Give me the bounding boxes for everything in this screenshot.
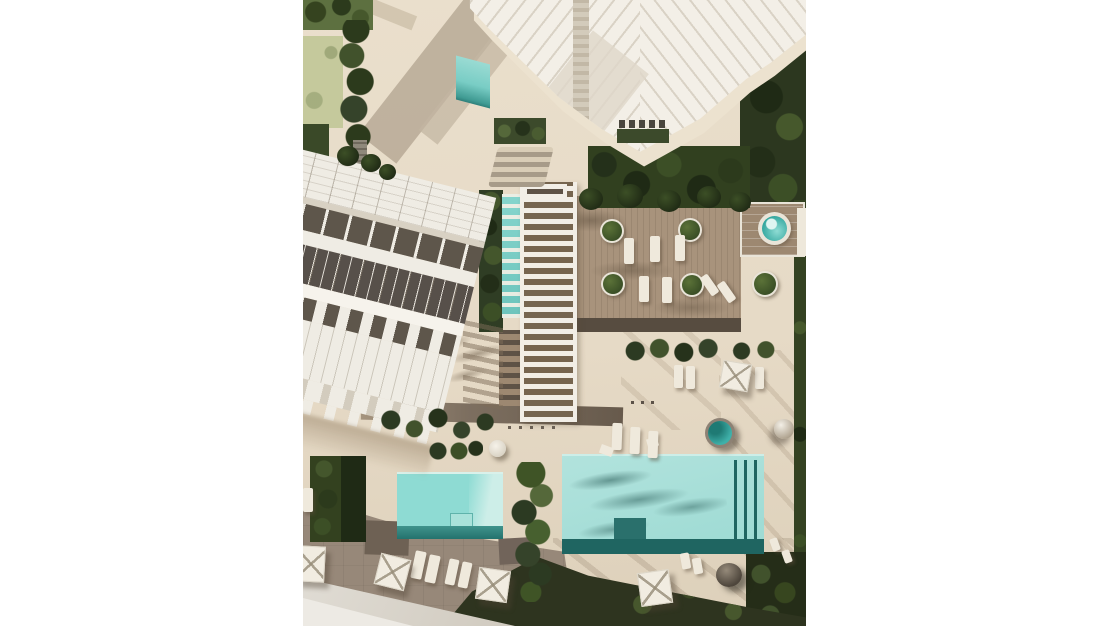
jacuzzi-plunge-pool (758, 212, 791, 245)
pool-edge (562, 454, 764, 456)
sun-lounger (612, 423, 623, 450)
tower-windows (619, 120, 665, 128)
tree-canopy (361, 154, 381, 172)
sun-lounger (686, 366, 695, 389)
tower-rooftop-lap-pool (456, 55, 490, 108)
pergola-walkway (520, 182, 577, 422)
hedge-foliage (310, 456, 366, 542)
sun-lounger (674, 365, 683, 388)
deck-lights (631, 401, 657, 404)
tree-canopy (697, 186, 721, 208)
sun-lounger (662, 277, 672, 303)
tower-planter (617, 129, 669, 143)
tree-canopy (579, 188, 603, 210)
sun-lounger (755, 367, 764, 389)
tree-canopy (657, 190, 681, 212)
side-table (489, 440, 506, 457)
sun-lounger (624, 238, 634, 264)
planter-strip (494, 118, 546, 144)
sand-ground (303, 0, 806, 626)
sun-lounger (650, 236, 660, 262)
round-planter (600, 219, 624, 243)
sun-lounger (639, 276, 649, 302)
pool-deep-edge (397, 526, 503, 539)
render-canvas (0, 0, 1110, 626)
walkway-lap-pool (502, 194, 522, 318)
parasol (475, 567, 511, 603)
ball-sculpture (774, 419, 794, 439)
tower-core (573, 0, 589, 152)
pool-deep-edge (562, 539, 764, 554)
deck-lights (508, 426, 558, 429)
pergola-shadow (488, 147, 554, 187)
main-pool (562, 454, 764, 554)
round-planter (752, 271, 778, 297)
parasol (637, 569, 673, 607)
tree-canopy (617, 184, 643, 208)
tree-canopy (729, 192, 751, 212)
hedge-row (623, 338, 775, 364)
wood-deck (565, 196, 741, 332)
daybed (716, 563, 742, 587)
round-planter (601, 272, 625, 296)
pool-lane-lines (734, 460, 762, 548)
pergola-slat-shadow (463, 316, 503, 411)
sun-lounger (303, 488, 313, 512)
parasol (719, 360, 752, 393)
deck-shadow-strip (565, 318, 741, 332)
tree-canopy (337, 146, 359, 166)
tree-canopy (379, 164, 396, 180)
sun-lounger (675, 235, 685, 261)
parasol (303, 545, 326, 582)
bushes (423, 438, 483, 464)
sun-lounger (630, 427, 641, 454)
palm-cluster (503, 462, 565, 602)
jacuzzi-plunge-pool (705, 418, 735, 448)
white-railing (797, 208, 806, 256)
